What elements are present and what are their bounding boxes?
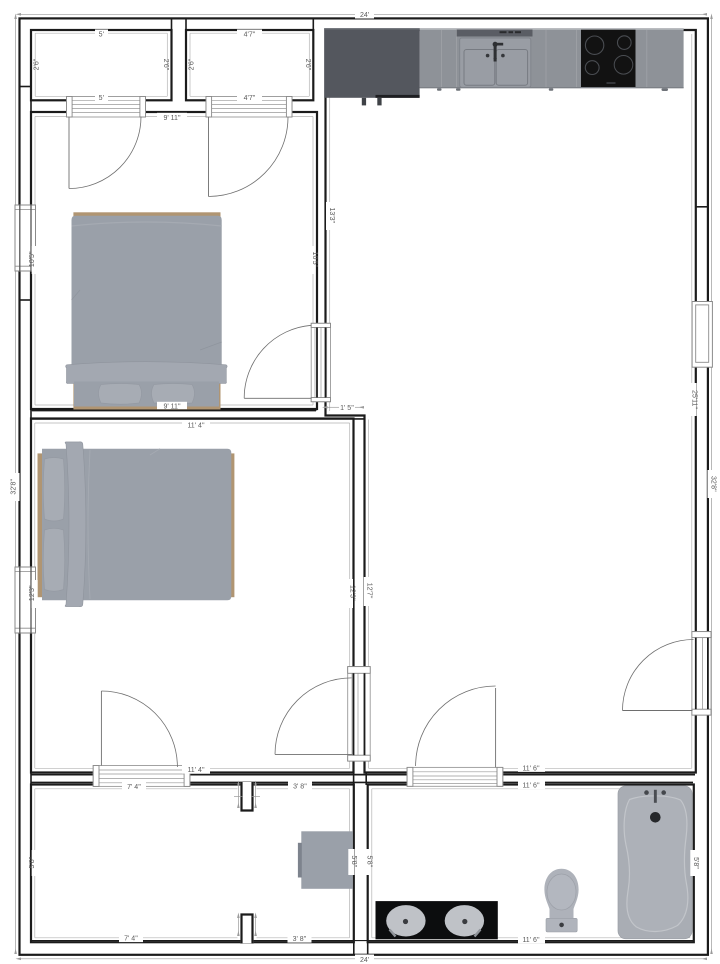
- svg-text:12'3'': 12'3'': [29, 585, 36, 601]
- svg-text:12'3'': 12'3'': [348, 585, 355, 601]
- svg-text:7' 4'': 7' 4'': [127, 784, 141, 791]
- svg-text:24': 24': [360, 12, 369, 19]
- svg-text:7' 4'': 7' 4'': [124, 936, 138, 943]
- svg-text:2'6'': 2'6'': [34, 59, 41, 71]
- svg-text:5': 5': [99, 95, 104, 102]
- svg-text:4'7'': 4'7'': [244, 95, 256, 102]
- svg-text:5'8'': 5'8'': [350, 856, 357, 868]
- svg-text:11' 6'': 11' 6'': [522, 937, 539, 944]
- svg-text:32'8'': 32'8'': [10, 479, 17, 495]
- svg-text:2'6'': 2'6'': [188, 59, 195, 71]
- svg-text:5'8'': 5'8'': [29, 857, 36, 869]
- svg-text:5': 5': [99, 32, 104, 39]
- svg-text:11' 6'': 11' 6'': [522, 783, 539, 790]
- svg-text:2'6'': 2'6'': [162, 59, 169, 71]
- svg-text:32'8'': 32'8'': [709, 476, 716, 492]
- svg-text:4'7'': 4'7'': [244, 32, 256, 39]
- svg-text:10'5'': 10'5'': [311, 252, 318, 268]
- svg-text:9' 11'': 9' 11'': [163, 115, 180, 122]
- svg-text:3' 8'': 3' 8'': [293, 784, 307, 791]
- svg-text:2'6'': 2'6'': [304, 59, 311, 71]
- svg-text:11' 6'': 11' 6'': [522, 765, 539, 772]
- svg-text:24': 24': [360, 957, 369, 964]
- svg-text:25'11'': 25'11'': [691, 390, 698, 409]
- svg-text:9' 11'': 9' 11'': [163, 404, 180, 411]
- svg-text:1' 5'': 1' 5'': [340, 405, 354, 412]
- svg-text:13'3'': 13'3'': [328, 208, 335, 224]
- svg-text:3' 8'': 3' 8'': [293, 936, 307, 943]
- svg-text:11' 4'': 11' 4'': [187, 422, 204, 429]
- svg-text:11' 4'': 11' 4'': [187, 767, 204, 774]
- svg-text:5'8'': 5'8'': [692, 857, 699, 869]
- svg-text:12'7'': 12'7'': [365, 583, 372, 599]
- svg-text:10'5'': 10'5'': [29, 251, 36, 267]
- svg-text:5'8'': 5'8'': [366, 856, 373, 868]
